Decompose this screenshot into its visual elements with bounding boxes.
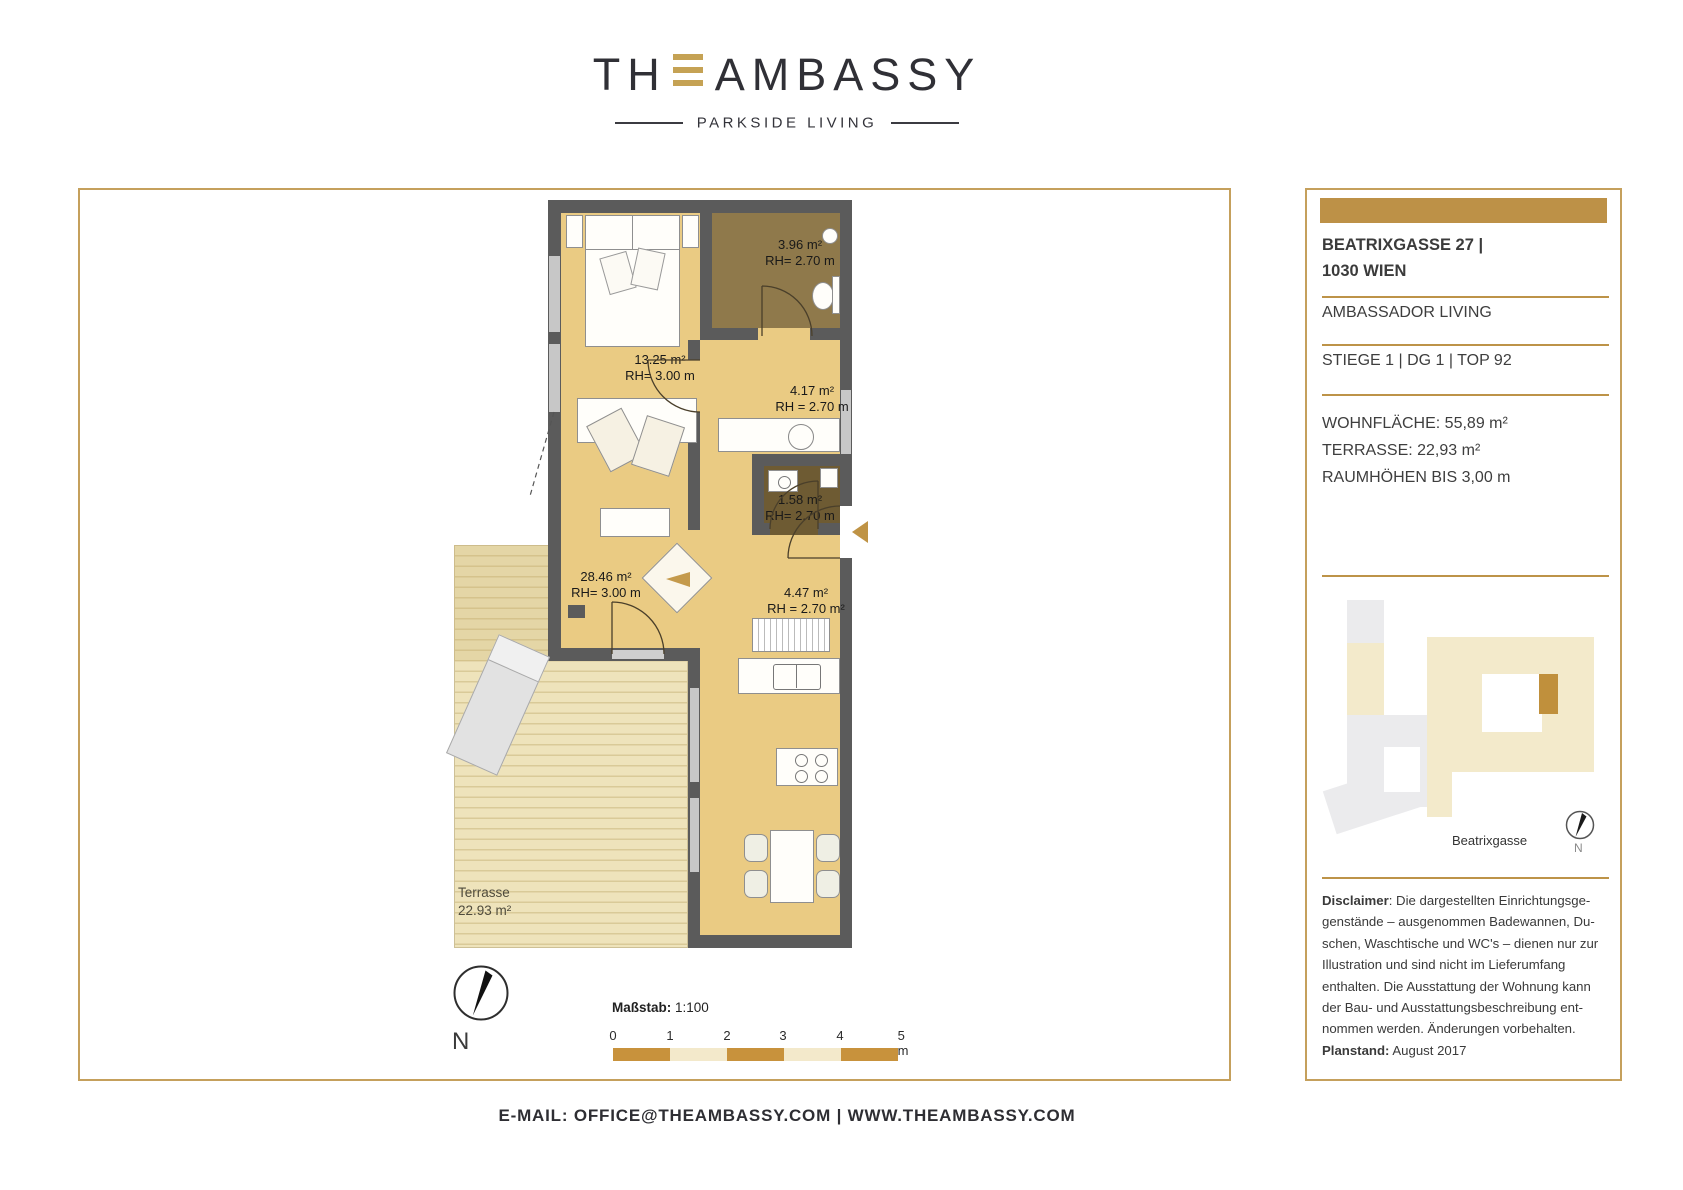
bath-door-gap <box>758 328 810 340</box>
sidebar-unit: STIEGE 1 | DG 1 | TOP 92 <box>1322 352 1512 370</box>
terrace-door-glass <box>612 650 664 659</box>
sidebar-divider-2 <box>1322 344 1609 346</box>
sidebar-disclaimer: Disclaimer: Die dargestellten Einrichtun… <box>1322 890 1612 1061</box>
siteplan-gray-courtyard <box>1384 747 1420 792</box>
sidebar-divider-1 <box>1322 296 1609 298</box>
tagline-rule-right <box>891 122 959 124</box>
window-terrace-1 <box>690 688 699 782</box>
wardrobe-icon <box>752 618 830 652</box>
siteplan-courtyard <box>1482 674 1542 732</box>
room-label-bedroom: 13.25 m²RH= 3.00 m <box>625 352 695 385</box>
siteplan-street-label: Beatrixgasse <box>1452 833 1527 848</box>
sidebar-divider-3 <box>1322 394 1609 396</box>
sidebar-divider-4 <box>1322 575 1609 577</box>
sidebar-gold-bar <box>1320 198 1607 223</box>
wall-right <box>840 200 852 948</box>
disclaimer-line-5: enthalten. Die Ausstattung der Wohnung k… <box>1322 976 1612 997</box>
disclaimer-line-6: der Bau- und Ausstattungsbeschreibung en… <box>1322 997 1612 1018</box>
address-line1: BEATRIXGASSE 27 | <box>1322 232 1483 258</box>
kitchen-sink-counter <box>738 658 840 694</box>
disclaimer-line-4: Illustration und sind nicht im Lieferumf… <box>1322 954 1612 975</box>
bath-top-floor <box>712 213 840 328</box>
siteplan-unit-highlight <box>1539 674 1558 714</box>
window-left-2 <box>549 344 560 412</box>
terrace-label: Terrasse22.93 m² <box>458 884 511 919</box>
bed-icon <box>585 215 680 347</box>
toilet-tank <box>832 276 840 314</box>
footer-contact: E-MAIL: OFFICE@THEAMBASSY.COM | WWW.THEA… <box>0 1106 1574 1126</box>
siteplan-north-label: N <box>1574 841 1583 855</box>
wc-door-gap <box>770 523 818 535</box>
vanity-basin-icon <box>788 424 814 450</box>
room-label-bathroom: 4.17 m²RH = 2.70 m <box>775 383 848 416</box>
bed-headboard-split <box>632 216 633 250</box>
entry-door-gap <box>840 506 852 558</box>
sidebar-stats: WOHNFLÄCHE: 55,89 m² TERRASSE: 22,93 m² … <box>1322 410 1510 491</box>
tagline-rule-left <box>615 122 683 124</box>
room-label-living: 28.46 m²RH= 3.00 m <box>571 569 641 602</box>
plan-compass-icon <box>452 964 510 1022</box>
cooktop-icon <box>776 748 838 786</box>
scale-bar <box>613 1048 898 1061</box>
stat-terrasse: TERRASSE: 22,93 m² <box>1322 437 1510 464</box>
coffee-table-icon <box>600 508 670 537</box>
tagline-text: PARKSIDE LIVING <box>697 115 878 132</box>
stat-wohnflaeche: WOHNFLÄCHE: 55,89 m² <box>1322 410 1510 437</box>
sidebar-divider-5 <box>1322 877 1609 879</box>
room-label-wc: 1.58 m²RH= 2.70 m <box>765 492 835 525</box>
siteplan-building-gray-a <box>1347 600 1384 647</box>
burner-4 <box>815 770 828 783</box>
logo-text-start: TH <box>593 49 667 100</box>
chair-4 <box>816 870 840 898</box>
siteplan-building-cream-strip <box>1347 643 1384 717</box>
brand-tagline: PARKSIDE LIVING <box>0 114 1574 132</box>
sidebar-address: BEATRIXGASSE 27 | 1030 WIEN <box>1322 232 1483 284</box>
disclaimer-line-2: genstände – ausgenommen Badewannen, Du- <box>1322 911 1612 932</box>
plan-north-label: N <box>452 1028 469 1056</box>
flyer-page: TH AMBASSY PARKSIDE LIVING <box>0 0 1683 1190</box>
window-left-1 <box>549 256 560 332</box>
info-sidebar: BEATRIXGASSE 27 | 1030 WIEN AMBASSADOR L… <box>1305 188 1622 1081</box>
washer-drum <box>778 476 791 489</box>
disclaimer-line-7: nommen werden. Änderungen vorbehalten. <box>1322 1018 1612 1039</box>
nightstand-left <box>566 215 583 248</box>
chair-3 <box>816 834 840 862</box>
wall-bottom <box>688 935 852 948</box>
kitchen-sink-icon <box>773 664 821 690</box>
siteplan-map: Beatrixgasse N <box>1322 583 1610 863</box>
wall-bed-bath <box>700 200 712 340</box>
address-line2: 1030 WIEN <box>1322 258 1483 284</box>
burner-3 <box>795 770 808 783</box>
kitchen-sink-divider <box>796 664 797 688</box>
room-label-bath-top: 3.96 m²RH= 2.70 m <box>765 237 835 270</box>
planstand-line: Planstand: August 2017 <box>1322 1040 1612 1061</box>
planstand-label: Planstand: <box>1322 1043 1389 1058</box>
siteplan-compass-icon <box>1562 807 1598 843</box>
window-terrace-2 <box>690 798 699 872</box>
nightstand-right <box>682 215 699 248</box>
bed-blanket-2 <box>630 248 665 291</box>
planstand-value: August 2017 <box>1392 1043 1466 1058</box>
vanity-counter-icon <box>718 418 840 452</box>
siteplan-building-cream-tail <box>1427 772 1452 817</box>
disclaimer-line-3: schen, Waschtische und WC's – dienen nur… <box>1322 933 1612 954</box>
wc-sink-icon <box>820 468 838 488</box>
toilet-icon <box>812 282 834 310</box>
stat-raumhoehen: RAUMHÖHEN BIS 3,00 m <box>1322 464 1510 491</box>
sidebar-project: AMBASSADOR LIVING <box>1322 304 1492 322</box>
chair-2 <box>744 870 768 898</box>
bed-blanket-1 <box>599 251 636 295</box>
logo-text-end: AMBASSY <box>715 49 982 100</box>
burner-2 <box>815 754 828 767</box>
scale-caption: Maßstab: 1:100 <box>612 1000 709 1015</box>
scale-value: 1:100 <box>675 1000 709 1015</box>
washer-icon <box>768 470 798 492</box>
burner-1 <box>795 754 808 767</box>
room-label-corridor: 4.47 m²RH = 2.70 m² <box>767 585 845 618</box>
brand-logo: TH AMBASSY PARKSIDE LIVING <box>0 52 1574 132</box>
scale-label: Maßstab: <box>612 1000 671 1015</box>
dining-table-icon <box>770 830 814 903</box>
disclaimer-label: Disclaimer <box>1322 893 1389 908</box>
wall-wc-top <box>752 454 852 466</box>
chair-1 <box>744 834 768 862</box>
disclaimer-line-1: Disclaimer: Die dargestellten Einrichtun… <box>1322 890 1612 911</box>
living-floor-marker <box>568 605 585 618</box>
logo-e-bars-icon <box>673 54 703 86</box>
